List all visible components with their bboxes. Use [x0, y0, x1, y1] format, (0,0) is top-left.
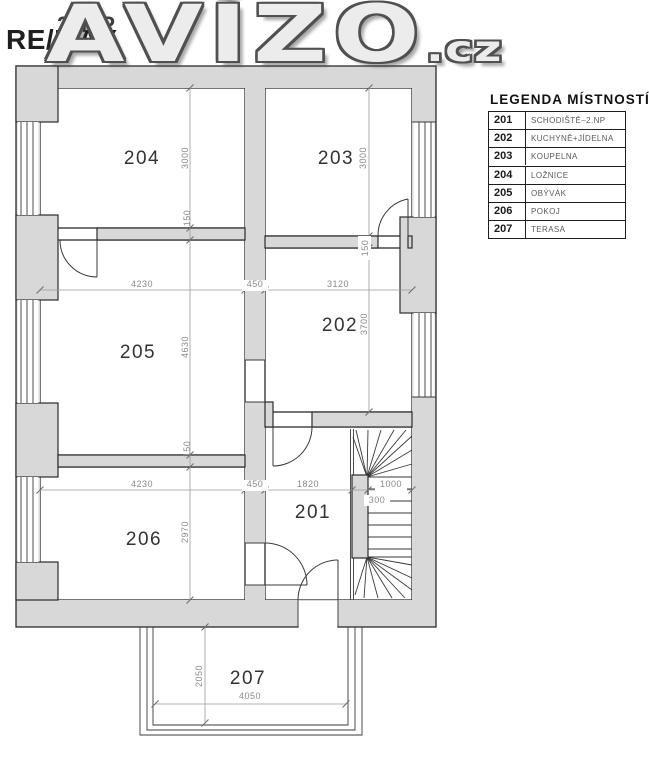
legend-row-203: 203KOUPELNA: [489, 147, 625, 165]
dim-stair-300: 300: [369, 495, 386, 505]
legend-num: 204: [489, 167, 526, 184]
legend-table: 201SCHODIŠTĚ–2.NP 202KUCHYNĚ+JÍDELNA 203…: [488, 111, 626, 239]
wall-202-201-stub: [265, 402, 273, 427]
room-number-202: 202: [322, 315, 358, 336]
dim-terrace-depth: 2050: [194, 665, 204, 687]
dim-wall-150-right: 150: [360, 240, 370, 257]
terrace-doorway: [298, 600, 338, 629]
wall-pier: [16, 66, 58, 122]
wall-204-205: [97, 228, 245, 240]
dim-height-203: 3000: [358, 147, 368, 169]
dim-width-205: 4230: [131, 279, 153, 289]
legend-row-204: 204LOŽNICE: [489, 166, 625, 184]
dim-height-204: 3000: [180, 147, 190, 169]
wall-pier: [16, 562, 58, 600]
legend-row-207: 207TERASA: [489, 220, 625, 238]
legend-name: SCHODIŠTĚ–2.NP: [526, 116, 606, 125]
dim-wall-150-left-top: 150: [182, 210, 192, 227]
legend-title: LEGENDA MÍSTNOSTÍ: [490, 92, 628, 107]
legend-name: KUCHYNĚ+JÍDELNA: [526, 134, 614, 143]
room-number-204: 204: [124, 148, 160, 169]
legend-num: 203: [489, 148, 526, 165]
room-number-203: 203: [318, 148, 354, 169]
legend-num: 202: [489, 130, 526, 147]
legend-name: OBÝVÁK: [526, 189, 566, 198]
dim-wall-450-bottom: 450: [247, 479, 264, 489]
legend-row-205: 205OBÝVÁK: [489, 184, 625, 202]
dim-wall-150-left-bottom: 150: [182, 441, 192, 458]
room-number-201: 201: [295, 502, 331, 523]
legend-num: 205: [489, 185, 526, 202]
room-number-205: 205: [120, 342, 156, 363]
legend-num: 207: [489, 221, 526, 238]
legend: LEGENDA MÍSTNOSTÍ 201SCHODIŠTĚ–2.NP 202K…: [488, 92, 628, 239]
legend-num: 206: [489, 203, 526, 220]
dim-width-202: 3120: [327, 279, 349, 289]
dim-height-202: 3700: [359, 313, 369, 335]
legend-row-201: 201SCHODIŠTĚ–2.NP: [489, 112, 625, 129]
legend-name: KOUPELNA: [526, 152, 578, 161]
wall-pier: [16, 403, 58, 477]
room-number-207: 207: [230, 668, 266, 689]
legend-row-206: 206POKOJ: [489, 202, 625, 220]
dim-width-206: 4230: [131, 479, 153, 489]
legend-name: LOŽNICE: [526, 171, 568, 180]
wall-pier: [16, 215, 58, 300]
dim-wall-450-top: 450: [247, 279, 264, 289]
dim-height-206: 2970: [180, 521, 190, 543]
legend-num: 201: [489, 112, 526, 129]
room-number-206: 206: [126, 529, 162, 550]
dim-height-205: 4630: [180, 336, 190, 358]
dim-terrace-width: 4050: [239, 691, 261, 701]
legend-name: POKOJ: [526, 207, 560, 216]
legend-row-202: 202KUCHYNĚ+JÍDELNA: [489, 129, 625, 147]
wall-203-202: [408, 236, 412, 248]
dim-width-stairs: 1000: [380, 479, 402, 489]
wall-pier: [400, 217, 436, 313]
dim-width-201: 1820: [297, 479, 319, 489]
legend-name: TERASA: [526, 225, 565, 234]
wall-202-201: [312, 412, 412, 427]
wall-205-206: [58, 455, 245, 467]
